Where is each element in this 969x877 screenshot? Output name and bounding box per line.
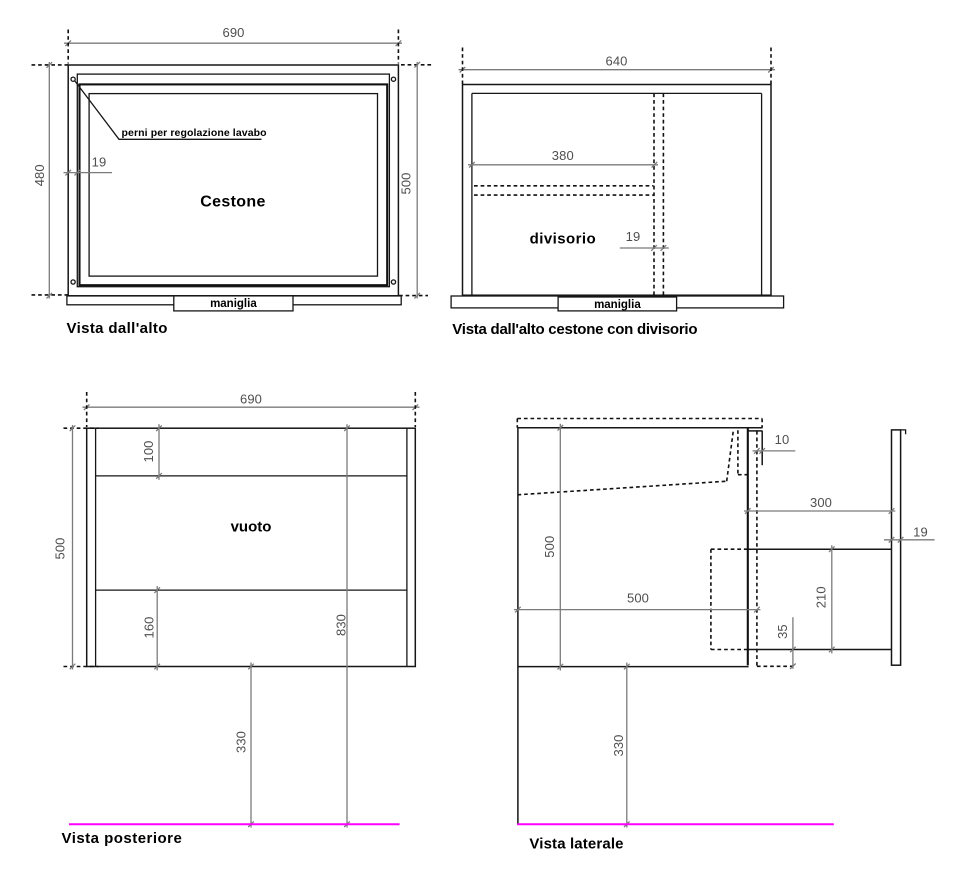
svg-text:640: 640 [606,54,628,69]
svg-text:19: 19 [92,155,107,170]
svg-text:160: 160 [142,617,157,639]
svg-text:330: 330 [234,731,249,753]
svg-text:500: 500 [399,173,414,195]
svg-text:19: 19 [626,229,641,244]
svg-text:Vista posteriore: Vista posteriore [62,830,183,847]
svg-text:300: 300 [810,495,832,510]
svg-text:35: 35 [775,624,790,639]
svg-text:480: 480 [32,164,47,186]
svg-text:Vista laterale: Vista laterale [529,836,623,853]
svg-text:19: 19 [913,524,928,539]
svg-text:Vista dall'alto: Vista dall'alto [67,320,168,337]
svg-text:380: 380 [552,148,574,163]
svg-text:690: 690 [240,392,262,407]
svg-text:500: 500 [53,538,68,560]
svg-text:830: 830 [334,614,349,636]
svg-text:maniglia: maniglia [594,299,641,311]
svg-text:vuoto: vuoto [231,519,272,536]
svg-text:100: 100 [141,441,156,463]
svg-text:210: 210 [814,586,829,608]
svg-text:10: 10 [775,432,790,447]
svg-text:Vista dall'alto cestone con di: Vista dall'alto cestone con divisorio [452,321,697,338]
svg-text:500: 500 [627,591,649,606]
svg-text:500: 500 [542,536,557,558]
svg-text:Cestone: Cestone [200,194,266,211]
svg-text:330: 330 [611,735,626,757]
svg-text:690: 690 [223,25,245,40]
svg-text:perni per regolazione lavabo: perni per regolazione lavabo [122,127,267,139]
svg-text:maniglia: maniglia [210,298,257,310]
svg-text:divisorio: divisorio [530,230,597,247]
